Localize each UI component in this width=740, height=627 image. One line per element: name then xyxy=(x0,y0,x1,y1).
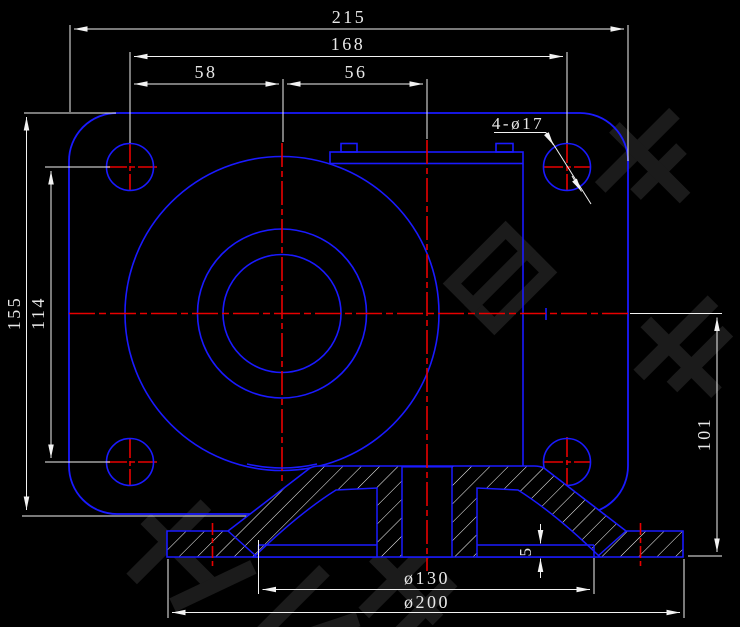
hole-callout-text: 4-ø17 xyxy=(492,114,544,133)
dim-text-130: ø130 xyxy=(404,568,450,588)
dim-text-56: 56 xyxy=(345,62,368,82)
drawing-svg: 215 168 58 56 155 114 101 4-ø17 ø130 ø20… xyxy=(0,0,740,627)
dim-text-155: 155 xyxy=(4,296,24,331)
dim-text-5: 5 xyxy=(516,546,535,557)
dim-text-200: ø200 xyxy=(404,592,450,612)
dim-text-58: 58 xyxy=(195,62,218,82)
dim-text-168: 168 xyxy=(331,34,366,54)
dim-text-101: 101 xyxy=(694,417,714,452)
dim-text-215: 215 xyxy=(332,7,367,27)
cad-canvas: 215 168 58 56 155 114 101 4-ø17 ø130 ø20… xyxy=(0,0,740,627)
dim-text-114: 114 xyxy=(28,296,48,330)
